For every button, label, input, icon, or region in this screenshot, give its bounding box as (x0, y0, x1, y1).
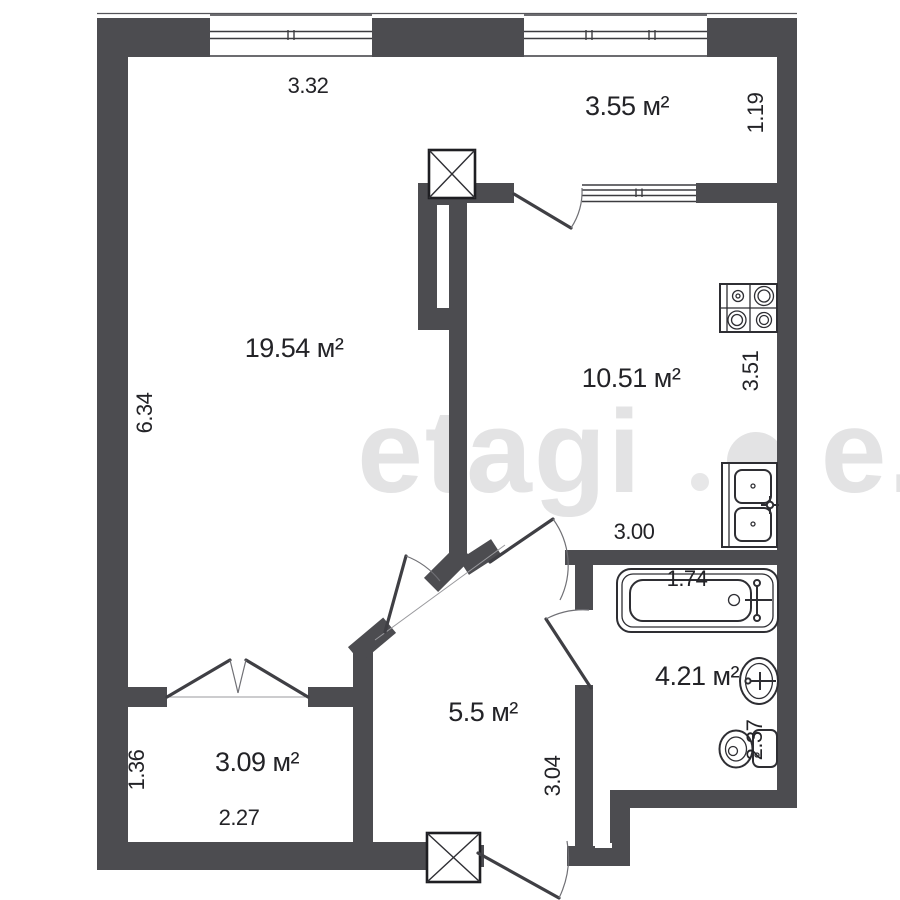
dim-living-depth: 6.34 (132, 392, 157, 433)
threshold-mark (595, 843, 612, 848)
vent-shaft-icon-top (429, 150, 475, 198)
room-label-bathroom: 4.21 м² (655, 661, 740, 691)
floor-plan-page: etagi e. (0, 0, 900, 900)
room-label-hallway: 5.5 м² (448, 697, 518, 727)
watermark-text: etagi (357, 386, 642, 518)
watermark-dot (691, 473, 709, 491)
watermark-suffix: e. (821, 386, 900, 518)
dim-hallway-depth: 3.04 (540, 755, 565, 796)
room-label-living: 19.54 м² (245, 333, 344, 363)
dim-storage-width: 2.27 (219, 805, 260, 830)
door-swing-icon-kitchen-hall (490, 519, 568, 600)
door-swing-icon-storage-double (167, 660, 308, 697)
stove-icon (720, 284, 777, 332)
watermark: etagi e. (357, 386, 900, 518)
door-swing-icon-entrance (478, 841, 568, 898)
window-icon-kitchen-balcony (582, 184, 696, 203)
dim-balcony-depth: 1.19 (743, 92, 768, 133)
dim-kitchen-depth: 3.51 (738, 350, 763, 391)
window-icon-living (210, 14, 372, 57)
vent-shaft-icon-entrance (427, 833, 484, 882)
dim-kitchen-width: 3.00 (614, 519, 655, 544)
door-swing-icon-bathroom (546, 610, 591, 688)
vent-duct-slot (437, 205, 449, 308)
doors (167, 188, 591, 898)
room-label-storage: 3.09 м² (215, 747, 300, 777)
room-label-balcony: 3.55 м² (585, 91, 670, 121)
kitchen-sink-icon (722, 463, 779, 547)
window-icon-balcony (524, 14, 707, 57)
washbasin-icon (740, 658, 778, 704)
door-swing-icon-living-hall (375, 545, 505, 640)
door-swing-icon-balcony (514, 188, 582, 228)
dim-living-width: 3.32 (288, 73, 329, 98)
floor-plan: etagi e. (0, 0, 900, 900)
dim-bathtub-width: 1.74 (667, 566, 708, 591)
dim-storage-depth: 1.36 (124, 749, 149, 790)
dim-bathroom-depth: 2.37 (742, 719, 767, 760)
room-label-kitchen: 10.51 м² (582, 363, 681, 393)
